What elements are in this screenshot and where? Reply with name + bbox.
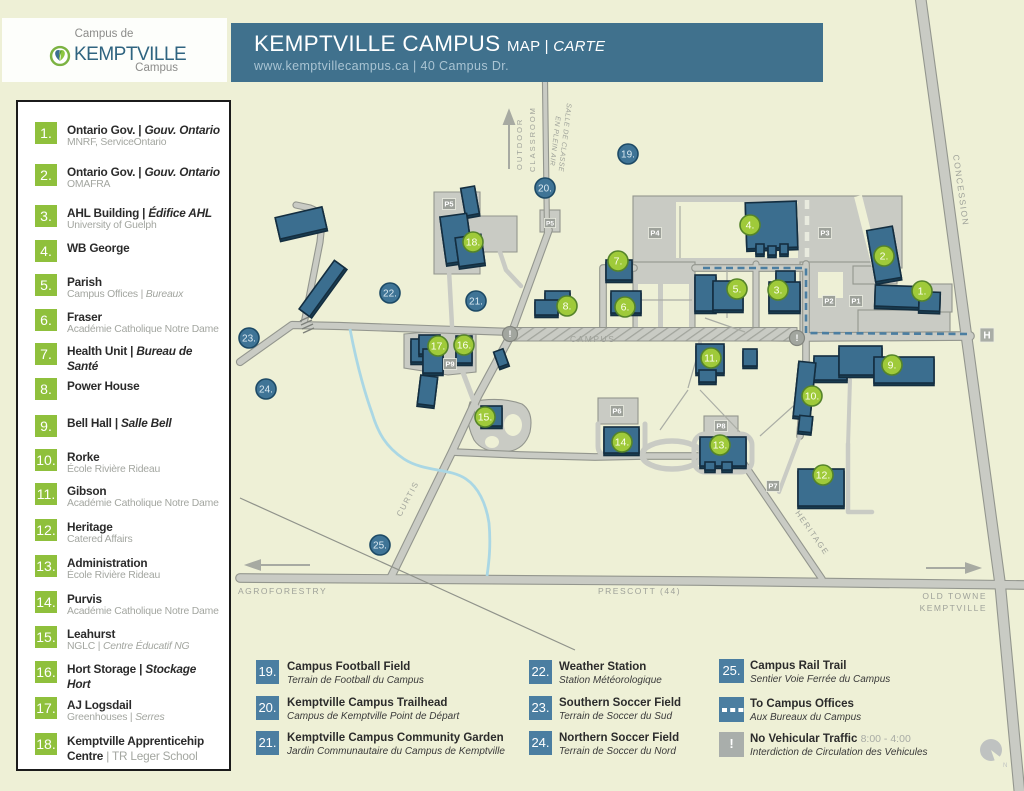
svg-text:P8: P8 xyxy=(716,422,725,431)
svg-text:!: ! xyxy=(796,333,799,343)
svg-text:P3: P3 xyxy=(820,229,829,238)
svg-text:1.: 1. xyxy=(918,286,927,298)
svg-text:3.: 3. xyxy=(774,285,783,297)
svg-text:OLD TOWNE: OLD TOWNE xyxy=(922,591,987,601)
svg-text:N: N xyxy=(1003,763,1007,769)
svg-text:P9: P9 xyxy=(445,360,454,369)
svg-text:P6: P6 xyxy=(612,407,621,416)
svg-text:5.: 5. xyxy=(733,284,742,296)
svg-text:23.: 23. xyxy=(242,334,256,345)
svg-text:11.: 11. xyxy=(704,353,718,365)
svg-text:22.: 22. xyxy=(383,289,397,300)
svg-text:12.: 12. xyxy=(816,470,831,482)
svg-text:14.: 14. xyxy=(615,437,630,449)
svg-text:9.: 9. xyxy=(888,360,897,372)
svg-text:P7: P7 xyxy=(768,482,777,491)
svg-text:CAMPUS: CAMPUS xyxy=(570,334,615,344)
svg-text:4.: 4. xyxy=(746,220,755,232)
svg-text:KEMPTVILLE: KEMPTVILLE xyxy=(920,603,987,613)
svg-text:20.: 20. xyxy=(538,184,552,195)
svg-text:18.: 18. xyxy=(466,237,481,249)
svg-text:P1: P1 xyxy=(851,297,860,306)
svg-text:6.: 6. xyxy=(621,302,630,314)
svg-text:7.: 7. xyxy=(614,256,623,268)
svg-text:24.: 24. xyxy=(259,385,273,396)
svg-text:P2: P2 xyxy=(824,297,833,306)
svg-text:2.: 2. xyxy=(880,251,889,263)
svg-text:16.: 16. xyxy=(457,340,472,352)
svg-text:15.: 15. xyxy=(478,412,493,424)
svg-text:P4: P4 xyxy=(650,229,660,238)
svg-text:13.: 13. xyxy=(713,440,728,452)
svg-text:CLASSROOM: CLASSROOM xyxy=(528,106,537,172)
svg-text:PRESCOTT (44): PRESCOTT (44) xyxy=(598,586,681,596)
svg-text:8.: 8. xyxy=(563,301,572,313)
svg-text:21.: 21. xyxy=(469,297,483,308)
svg-text:17.: 17. xyxy=(431,341,446,353)
svg-text:H: H xyxy=(983,331,990,342)
svg-text:OUTDOOR: OUTDOOR xyxy=(515,118,524,170)
svg-text:P5: P5 xyxy=(546,221,554,228)
svg-text:P5: P5 xyxy=(444,200,453,209)
svg-text:AGROFORESTRY: AGROFORESTRY xyxy=(238,586,327,596)
svg-text:10.: 10. xyxy=(805,391,820,403)
svg-text:!: ! xyxy=(509,329,512,339)
svg-text:25.: 25. xyxy=(373,541,387,552)
svg-text:19.: 19. xyxy=(621,150,635,161)
